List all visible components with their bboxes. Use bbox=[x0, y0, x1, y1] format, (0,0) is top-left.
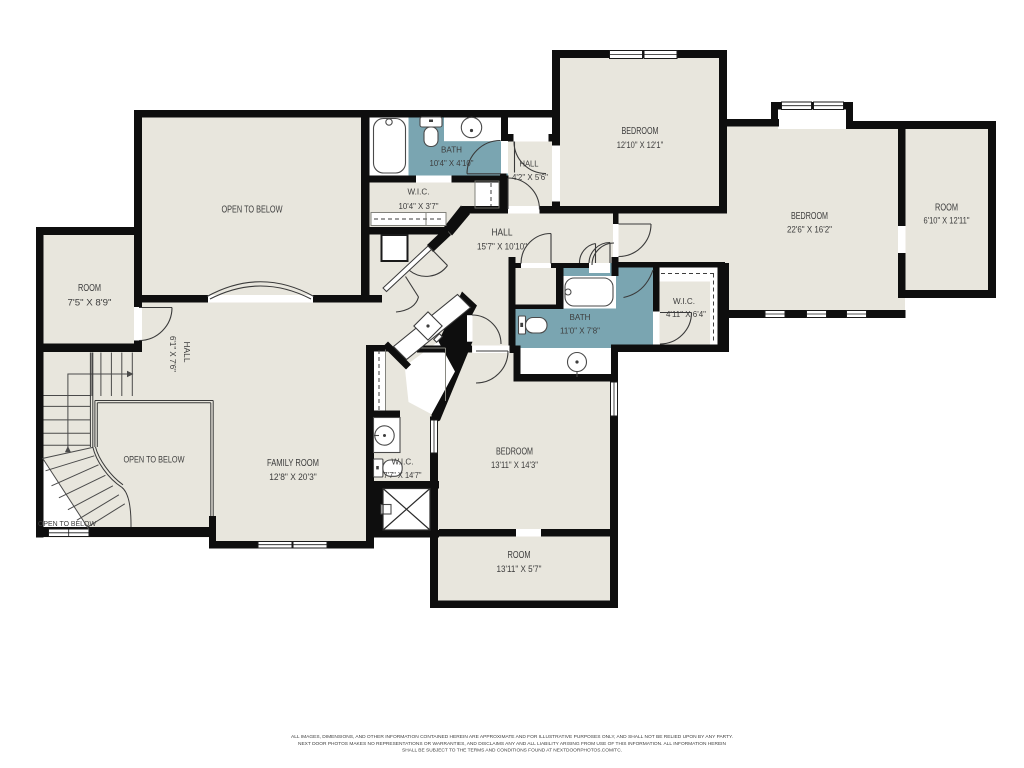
svg-text:12'10" X 12'1": 12'10" X 12'1" bbox=[617, 140, 664, 150]
svg-text:FAMILY ROOM: FAMILY ROOM bbox=[267, 458, 319, 469]
svg-text:OPEN TO BELOW: OPEN TO BELOW bbox=[222, 205, 283, 216]
svg-text:BATH: BATH bbox=[570, 312, 591, 322]
svg-text:10'4" X 4'10": 10'4" X 4'10" bbox=[430, 159, 474, 168]
svg-text:12'8" X 20'3": 12'8" X 20'3" bbox=[269, 472, 317, 482]
svg-text:ROOM: ROOM bbox=[508, 550, 531, 561]
svg-text:OPEN TO BELOW: OPEN TO BELOW bbox=[38, 519, 97, 528]
svg-text:W.I.C.: W.I.C. bbox=[408, 187, 430, 197]
svg-text:4'2" X 5'6": 4'2" X 5'6" bbox=[512, 173, 548, 182]
svg-text:15'7" X 10'10": 15'7" X 10'10" bbox=[477, 242, 527, 252]
svg-text:7'5" X 8'9": 7'5" X 8'9" bbox=[68, 298, 112, 308]
svg-text:BEDROOM: BEDROOM bbox=[496, 447, 533, 458]
svg-text:ALL IMAGES, DIMENSIONS, AND OT: ALL IMAGES, DIMENSIONS, AND OTHER INFORM… bbox=[291, 734, 733, 740]
svg-text:W.I.C.: W.I.C. bbox=[673, 296, 695, 306]
svg-text:11'0" X 7'8": 11'0" X 7'8" bbox=[560, 327, 600, 336]
svg-text:10'4" X 3'7": 10'4" X 3'7" bbox=[399, 202, 439, 211]
svg-text:HALL: HALL bbox=[520, 159, 539, 169]
svg-text:ROOM: ROOM bbox=[78, 283, 101, 294]
svg-text:OPEN TO BELOW: OPEN TO BELOW bbox=[124, 455, 185, 465]
svg-text:13'11" X 14'3": 13'11" X 14'3" bbox=[491, 460, 538, 470]
svg-text:SHALL BE SUBJECT TO THE TERMS: SHALL BE SUBJECT TO THE TERMS AND CONDIT… bbox=[402, 748, 622, 754]
svg-text:BEDROOM: BEDROOM bbox=[622, 126, 659, 137]
svg-text:ROOM: ROOM bbox=[935, 203, 958, 214]
svg-text:6'10" X 12'11": 6'10" X 12'11" bbox=[924, 216, 970, 226]
svg-text:HALL: HALL bbox=[182, 342, 192, 363]
svg-text:7'7" X 14'7": 7'7" X 14'7" bbox=[384, 471, 422, 480]
svg-text:22'6" X 16'2": 22'6" X 16'2" bbox=[787, 225, 832, 235]
svg-text:BATH: BATH bbox=[441, 145, 462, 155]
svg-text:HALL: HALL bbox=[492, 228, 513, 239]
svg-text:NEXT DOOR PHOTOS MAKES NO REPR: NEXT DOOR PHOTOS MAKES NO REPRESENTATION… bbox=[298, 741, 726, 747]
svg-text:4'11" X 6'4": 4'11" X 6'4" bbox=[666, 310, 706, 319]
svg-text:13'11" X 5'7": 13'11" X 5'7" bbox=[497, 564, 542, 574]
svg-text:6'1" X 7'6": 6'1" X 7'6" bbox=[168, 336, 177, 372]
svg-text:W.I.C.: W.I.C. bbox=[392, 457, 414, 467]
svg-text:BEDROOM: BEDROOM bbox=[791, 211, 828, 222]
